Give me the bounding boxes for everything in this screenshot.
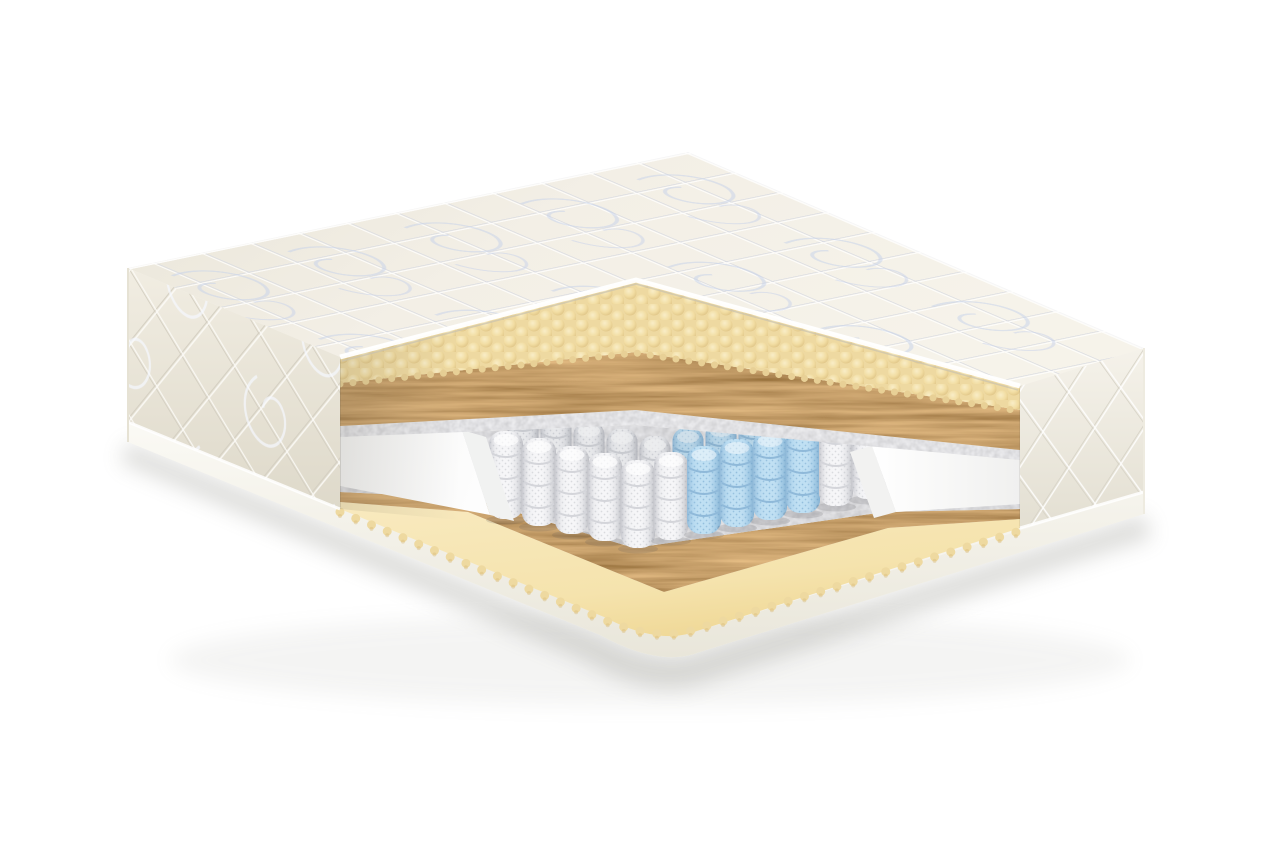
pocket-spring-white — [651, 452, 691, 546]
cutaway-shadow-left — [340, 326, 460, 520]
pocket-spring-white — [552, 446, 592, 540]
pocket-spring-blue — [717, 439, 757, 533]
mattress-cutaway-illustration — [0, 0, 1280, 854]
pocket-spring-blue — [684, 446, 724, 540]
pocket-spring-white — [519, 438, 559, 532]
pocket-spring-white — [585, 453, 625, 547]
product-render-canvas — [0, 0, 1280, 854]
pocket-spring-blue — [750, 432, 790, 526]
pocket-spring-white — [618, 460, 658, 554]
